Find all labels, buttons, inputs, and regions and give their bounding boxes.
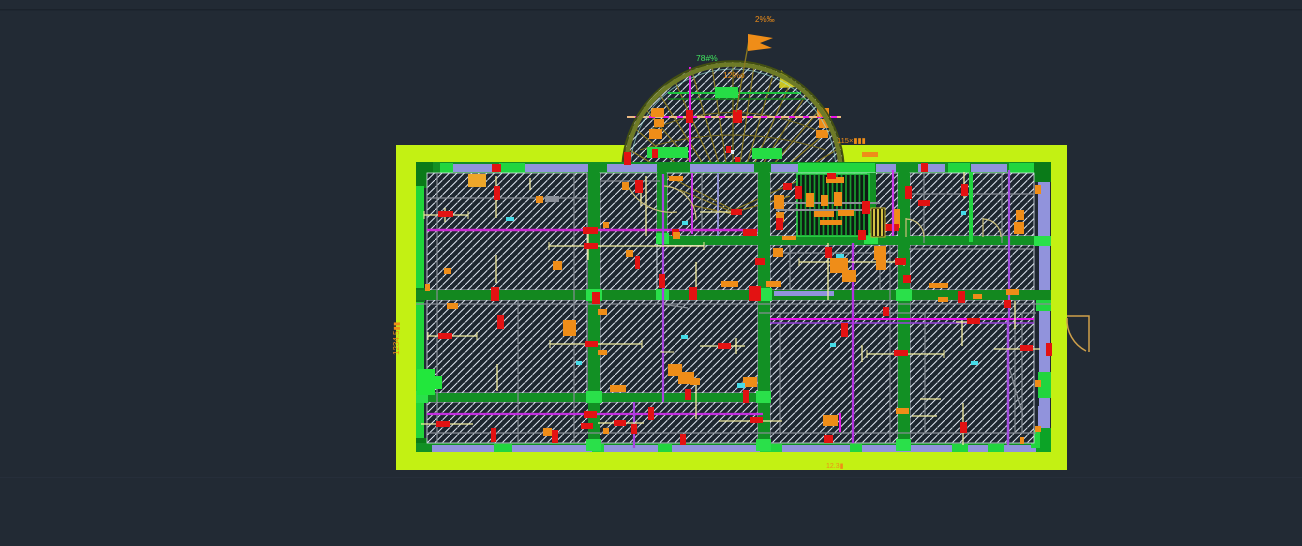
svg-text:115×▮▮▮: 115×▮▮▮ xyxy=(837,136,866,145)
svg-text:2%‰: 2%‰ xyxy=(755,15,775,24)
svg-text:12%о: 12%о xyxy=(723,70,745,80)
svg-text:78#%: 78#% xyxy=(696,53,718,63)
svg-text:12.3▮: 12.3▮ xyxy=(826,463,844,470)
svg-text:1234.5▮▮: 1234.5▮▮ xyxy=(392,322,401,355)
